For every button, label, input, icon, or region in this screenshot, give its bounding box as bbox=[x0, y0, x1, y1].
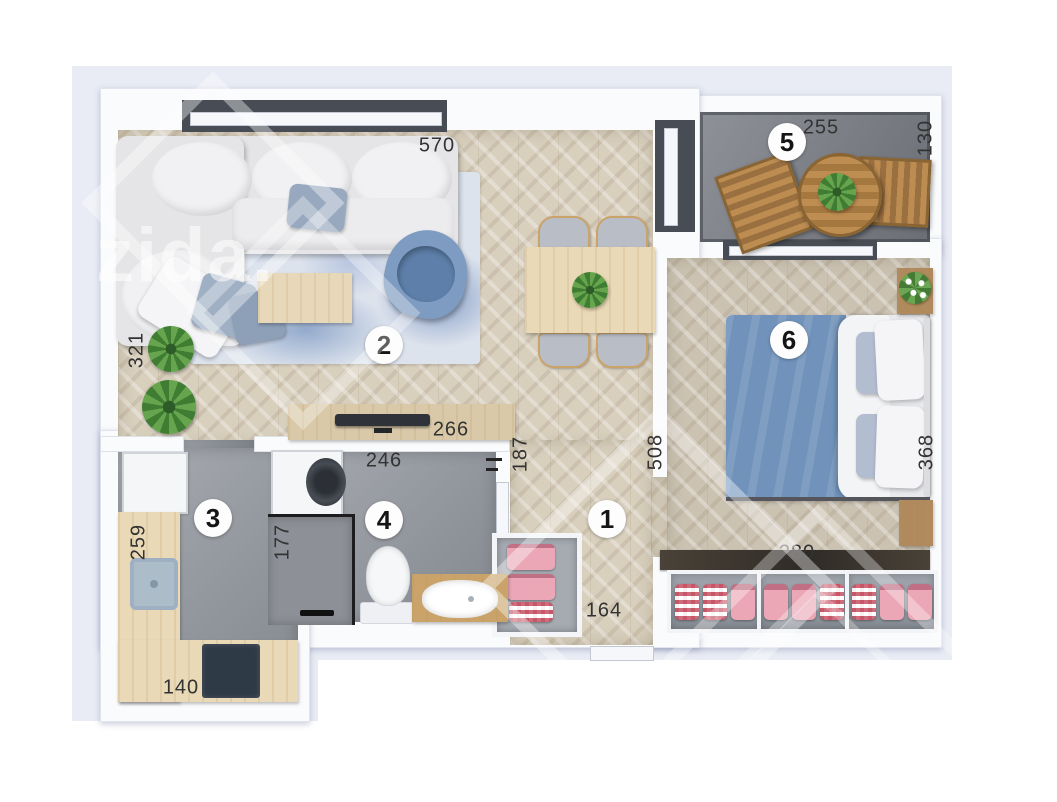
bed-pillow-white bbox=[874, 319, 926, 401]
nightstand-plant bbox=[899, 272, 931, 304]
tv bbox=[335, 414, 430, 426]
living-plant bbox=[142, 380, 196, 434]
dim-bedroom-depth: 368 bbox=[916, 434, 939, 470]
dim-bathroom-depth: 177 bbox=[272, 524, 295, 560]
towel-rail-icon bbox=[486, 468, 498, 471]
room-number-label: 3 bbox=[206, 503, 220, 534]
washing-machine-drum bbox=[306, 458, 346, 506]
basin-drain bbox=[468, 596, 474, 602]
fridge bbox=[122, 452, 188, 514]
entrance-door bbox=[590, 646, 654, 661]
armchair-seat bbox=[392, 241, 460, 308]
dim-kitchen-depth: 259 bbox=[128, 524, 151, 560]
dim-living-width: 570 bbox=[419, 135, 455, 158]
dim-kitchen-width: 140 bbox=[163, 677, 199, 700]
room-number-label: 2 bbox=[377, 330, 391, 361]
dining-table-plant bbox=[572, 272, 608, 308]
vanity-basin bbox=[422, 580, 498, 618]
room-number-label: 5 bbox=[780, 127, 794, 158]
dim-media-unit: 266 bbox=[433, 419, 469, 442]
folded-clothes bbox=[792, 584, 816, 620]
folded-clothes bbox=[820, 584, 844, 620]
folded-clothes bbox=[703, 584, 727, 620]
shower-fixture bbox=[300, 610, 334, 616]
bathroom-door bbox=[496, 482, 509, 538]
dim-corridor-length: 508 bbox=[645, 434, 668, 470]
folded-clothes bbox=[507, 574, 555, 600]
folded-clothes bbox=[852, 584, 876, 620]
room-number-bathroom: 4 bbox=[365, 501, 403, 539]
wardrobe-compartment bbox=[757, 570, 851, 633]
sofa-pillow-gray bbox=[286, 183, 348, 233]
room-number-corridor: 1 bbox=[588, 500, 626, 538]
folded-clothes bbox=[731, 584, 755, 620]
dim-living-depth: 321 bbox=[126, 332, 149, 368]
room-number-living-room: 2 bbox=[365, 326, 403, 364]
coffee-table bbox=[258, 273, 352, 323]
cooktop bbox=[202, 644, 260, 698]
dim-balcony-width: 255 bbox=[803, 117, 839, 140]
folded-clothes bbox=[764, 584, 788, 620]
room-number-kitchen: 3 bbox=[194, 499, 232, 537]
nightstand-bottom bbox=[899, 500, 933, 546]
folded-clothes bbox=[880, 584, 904, 620]
room-number-label: 1 bbox=[600, 504, 614, 535]
dining-chair bbox=[538, 332, 590, 368]
tv-stand bbox=[374, 428, 392, 433]
dim-corridor-width: 164 bbox=[586, 600, 622, 623]
wardrobe-compartment bbox=[667, 570, 763, 633]
living-plant bbox=[148, 326, 194, 372]
folded-clothes bbox=[908, 584, 932, 620]
dim-bathroom-width: 246 bbox=[366, 450, 402, 473]
dining-chair bbox=[596, 332, 648, 368]
room-number-label: 4 bbox=[377, 505, 391, 536]
toilet-bowl bbox=[366, 546, 410, 606]
towel-rail-icon bbox=[486, 458, 502, 461]
wardrobe-compartment bbox=[845, 570, 938, 633]
folded-clothes bbox=[675, 584, 699, 620]
room-number-label: 6 bbox=[782, 325, 796, 356]
balcony-door bbox=[664, 128, 678, 226]
balcony-plant bbox=[818, 173, 856, 211]
kitchen-top-wall bbox=[100, 436, 184, 452]
sink-drain bbox=[150, 580, 158, 588]
dim-wardrobe-width: 280 bbox=[779, 542, 815, 565]
folded-clothes bbox=[507, 544, 555, 570]
folded-clothes bbox=[509, 602, 553, 622]
dim-balcony-depth: 130 bbox=[915, 120, 938, 156]
living-window bbox=[190, 112, 442, 126]
floor-plan: 1 2 3 4 5 6 570 321 255 130 266 246 187 … bbox=[0, 0, 1057, 802]
room-number-bedroom: 6 bbox=[770, 321, 808, 359]
room-number-balcony: 5 bbox=[768, 123, 806, 161]
dim-corridor-nook: 187 bbox=[510, 436, 533, 472]
